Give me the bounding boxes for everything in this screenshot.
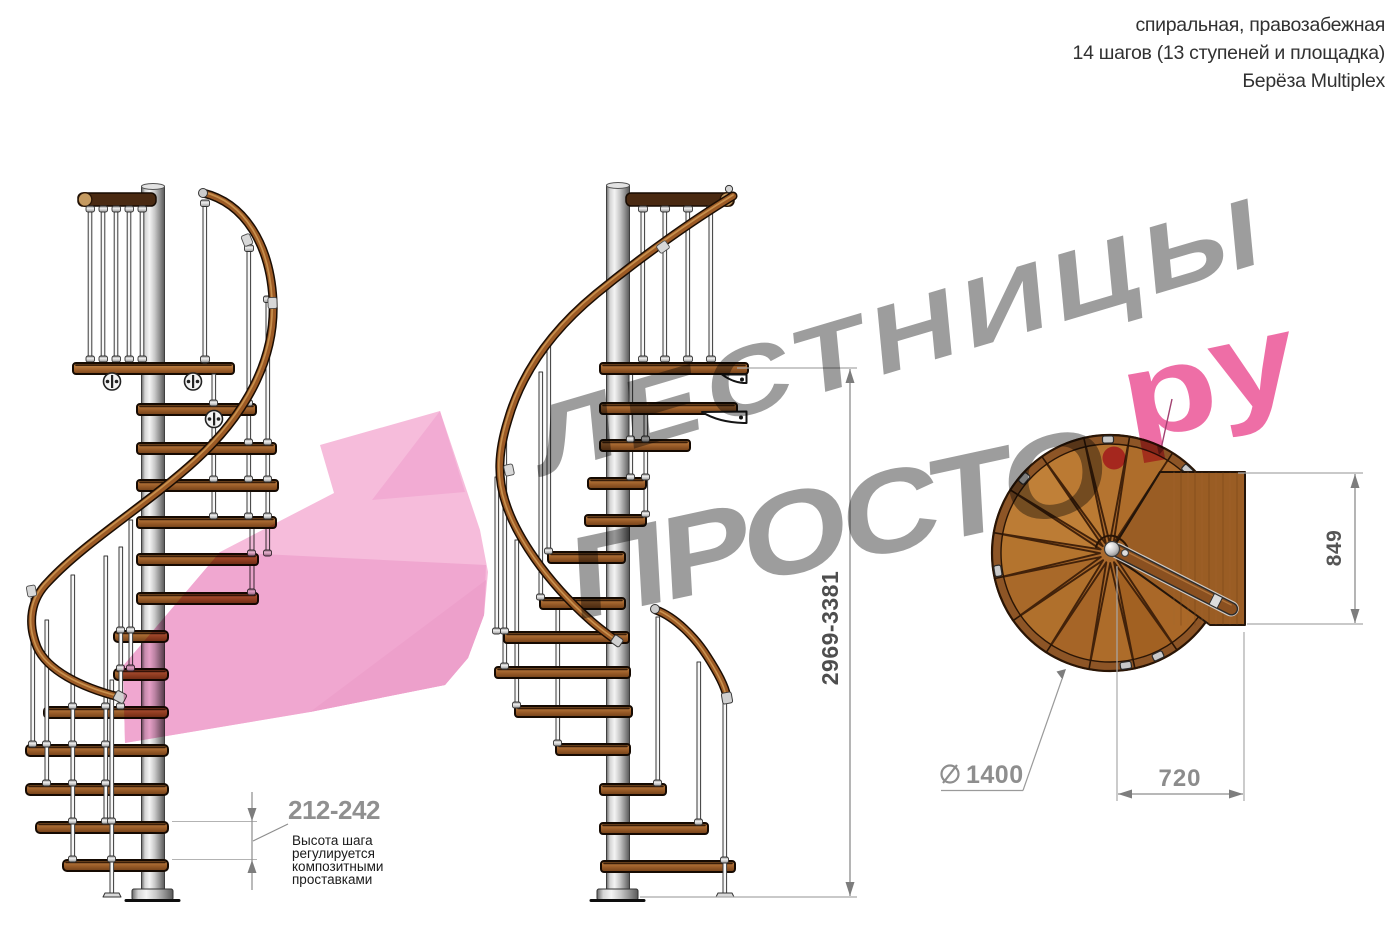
svg-text:212-242: 212-242 (288, 795, 380, 825)
svg-text:спиральная, правозабежная: спиральная, правозабежная (1135, 14, 1385, 36)
svg-text:Берёза Multiplex: Берёза Multiplex (1242, 70, 1385, 92)
svg-text:1400: 1400 (966, 761, 1024, 789)
svg-text:720: 720 (1158, 765, 1201, 792)
svg-text:849: 849 (1323, 530, 1346, 567)
svg-text:проставками: проставками (292, 872, 372, 887)
svg-text:14 шагов (13 ступеней и площад: 14 шагов (13 ступеней и площадка) (1073, 42, 1385, 64)
